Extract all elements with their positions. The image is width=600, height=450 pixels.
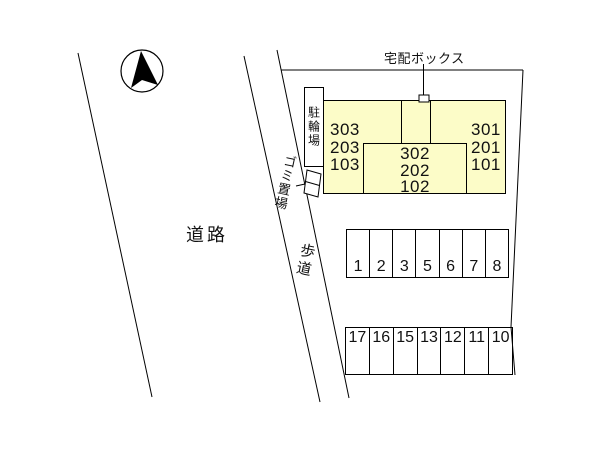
parking-stall: 7 xyxy=(463,230,486,277)
building-left-unit-numbers: 303 203 103 xyxy=(330,121,360,174)
unit-number: 301 xyxy=(471,121,501,139)
stall-number: 6 xyxy=(446,258,455,276)
garbage-area-box xyxy=(304,170,321,197)
unit-number: 101 xyxy=(471,156,501,174)
stall-number: 11 xyxy=(468,329,485,347)
stall-number: 17 xyxy=(349,329,367,347)
sidewalk-label: 歩道 xyxy=(291,241,319,281)
north-arrow-needle-icon xyxy=(131,51,158,88)
parking-stall: 11 xyxy=(465,328,489,374)
parking-stall: 5 xyxy=(416,230,439,277)
unit-number: 203 xyxy=(330,139,360,157)
delivery-box-label: 宅配ボックス xyxy=(384,48,465,67)
parking-stall: 12 xyxy=(441,328,465,374)
stall-number: 16 xyxy=(372,329,390,347)
parking-stall: 15 xyxy=(394,328,418,374)
parking-row-front: 1 2 3 5 6 7 8 xyxy=(346,229,509,278)
unit-number: 303 xyxy=(330,121,360,139)
parking-stall: 13 xyxy=(418,328,442,374)
garbage-area-leader-line xyxy=(296,184,305,186)
parking-row-back: 17 16 15 13 12 11 10 xyxy=(345,327,513,375)
unit-number: 102 xyxy=(363,179,467,196)
stall-number: 13 xyxy=(420,329,438,347)
north-arrow-icon xyxy=(121,50,163,92)
parking-stall: 2 xyxy=(370,230,393,277)
parking-stall: 8 xyxy=(486,230,508,277)
stall-number: 15 xyxy=(396,329,414,347)
stall-number: 2 xyxy=(377,258,386,276)
unit-number: 201 xyxy=(471,139,501,157)
parking-stall: 17 xyxy=(346,328,370,374)
garbage-area-label: ゴミ置場 xyxy=(270,153,300,212)
garbage-area-box-divider xyxy=(306,182,320,186)
stall-number: 3 xyxy=(400,258,409,276)
parking-stall: 16 xyxy=(370,328,394,374)
unit-number: 103 xyxy=(330,156,360,174)
boundary-lines-layer xyxy=(0,0,600,450)
parking-stall: 10 xyxy=(489,328,512,374)
road-label: 道路 xyxy=(186,221,228,247)
stall-number: 5 xyxy=(423,258,432,276)
building-right-unit-numbers: 301 201 101 xyxy=(471,121,501,174)
stall-number: 10 xyxy=(492,329,510,347)
road-west-edge-line xyxy=(78,53,152,397)
bicycle-parking-label: 駐輪場 xyxy=(306,106,323,148)
site-plan: 303 203 103 302 202 102 301 201 101 駐輪場 … xyxy=(0,0,600,450)
parking-stall: 6 xyxy=(440,230,463,277)
bicycle-parking-box: 駐輪場 xyxy=(304,87,324,167)
stall-number: 12 xyxy=(444,329,462,347)
stall-number: 8 xyxy=(492,258,501,276)
building-center-unit-numbers: 302 202 102 xyxy=(363,146,467,196)
stall-number: 7 xyxy=(469,258,478,276)
parking-stall: 3 xyxy=(393,230,416,277)
parking-stall: 1 xyxy=(347,230,370,277)
stall-number: 1 xyxy=(354,258,363,276)
